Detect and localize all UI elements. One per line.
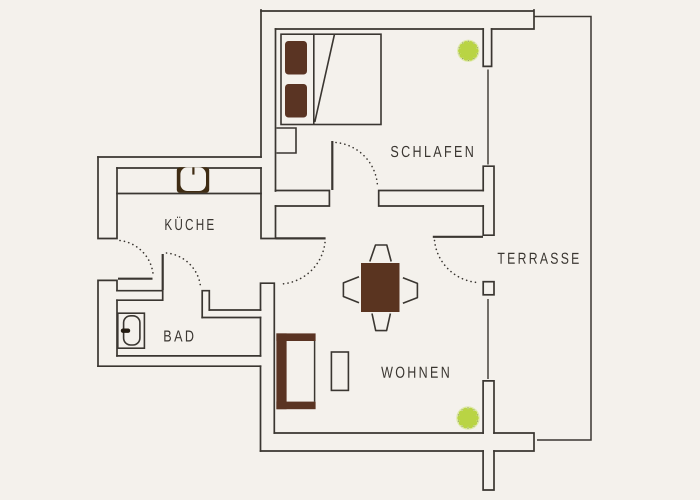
svg-text:WOHNEN: WOHNEN	[381, 365, 452, 382]
svg-text:BAD: BAD	[163, 328, 196, 345]
svg-text:TERRASSE: TERRASSE	[497, 251, 581, 268]
svg-text:KÜCHE: KÜCHE	[164, 216, 216, 234]
svg-text:SCHLAFEN: SCHLAFEN	[390, 144, 476, 161]
